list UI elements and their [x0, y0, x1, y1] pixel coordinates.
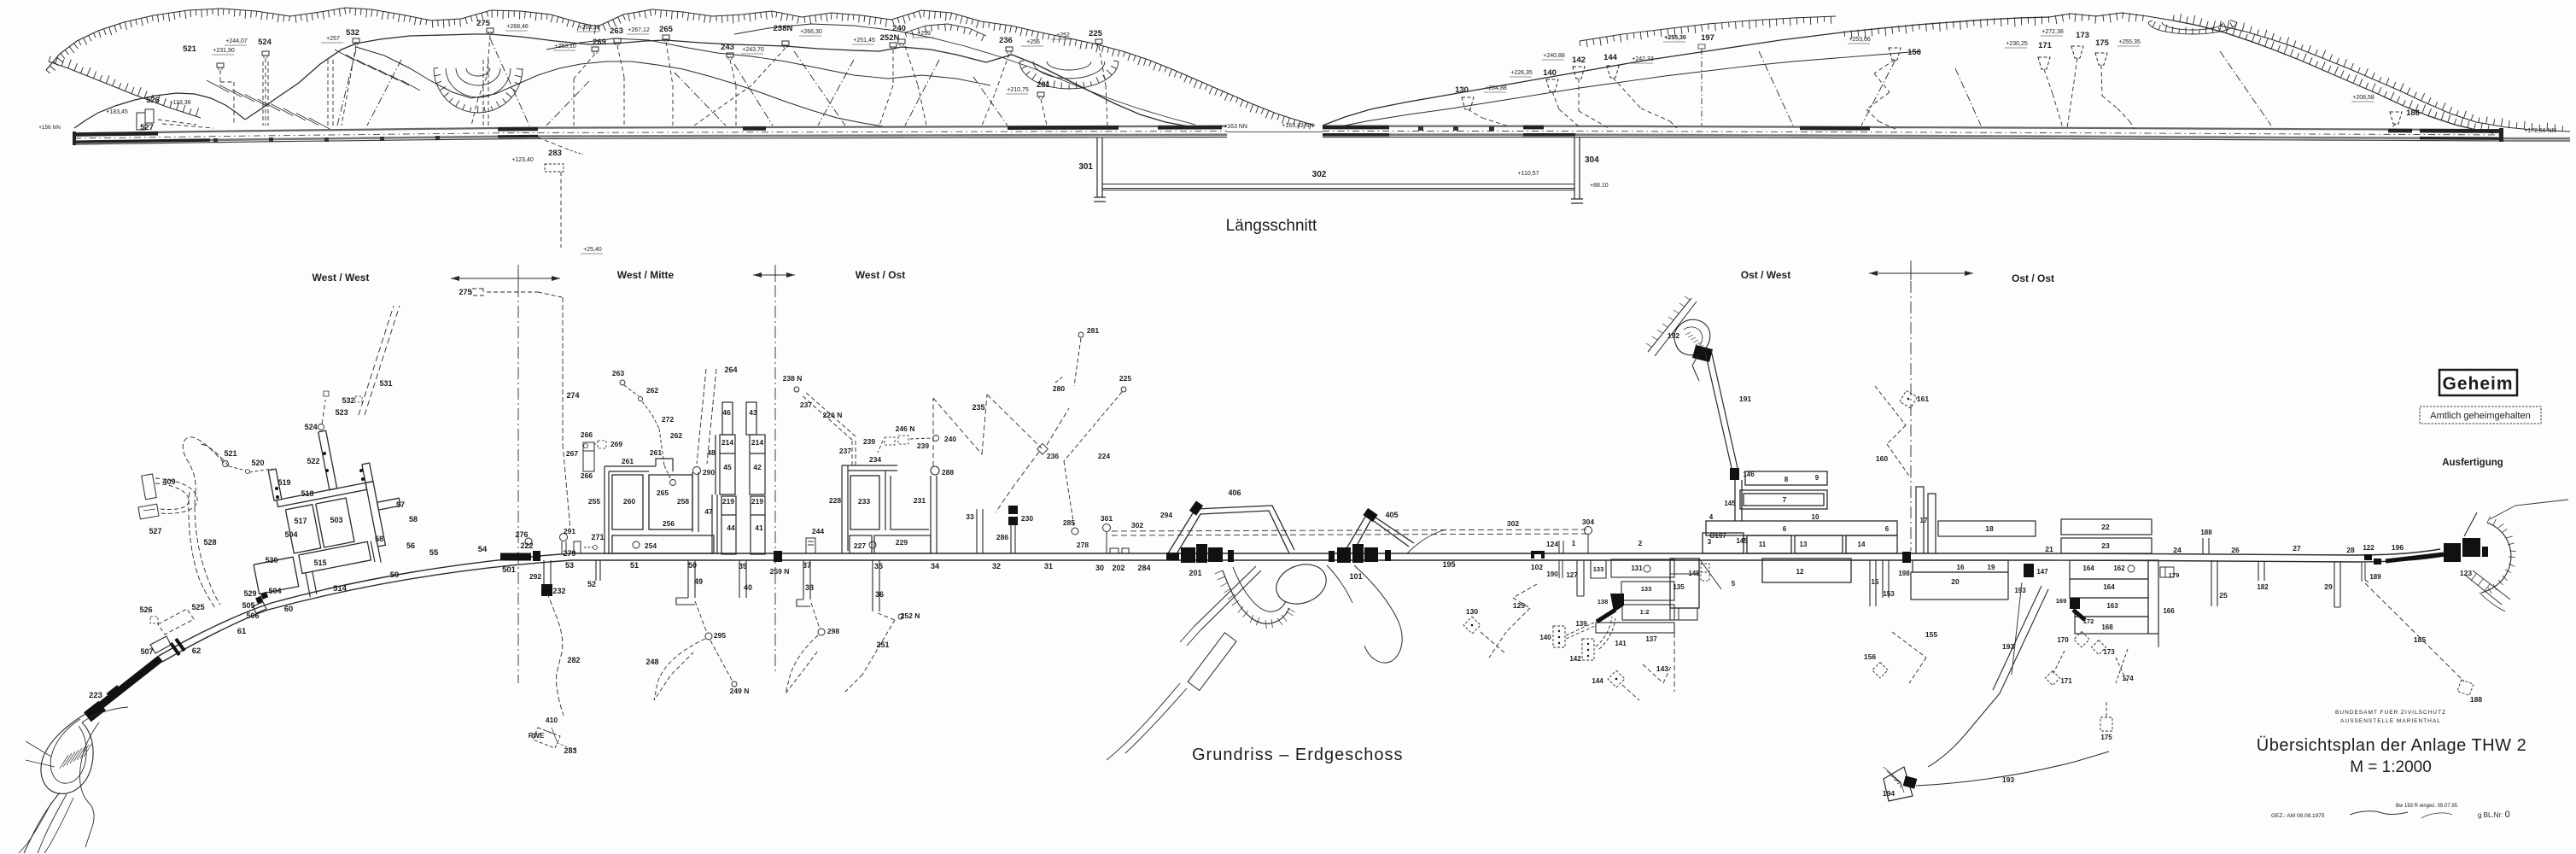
- svg-text:179: 179: [2169, 571, 2180, 579]
- svg-text:+257: +257: [326, 36, 340, 42]
- svg-text:252 N: 252 N: [901, 611, 920, 620]
- svg-text:129: 129: [1513, 601, 1525, 610]
- svg-text:255: 255: [588, 497, 600, 506]
- svg-text:38: 38: [805, 583, 814, 592]
- svg-text:162: 162: [2113, 564, 2125, 572]
- svg-text:259 N: 259 N: [770, 567, 790, 576]
- svg-text:189: 189: [2369, 573, 2381, 581]
- svg-text:254: 254: [645, 541, 657, 550]
- svg-text:291: 291: [564, 527, 575, 535]
- svg-text:18: 18: [1985, 524, 1994, 533]
- svg-text:BUNDESAMT FUER ZIVILSCHUTZ: BUNDESAMT FUER ZIVILSCHUTZ: [2335, 710, 2446, 716]
- svg-text:20: 20: [1951, 577, 1960, 586]
- svg-text:54: 54: [478, 545, 488, 554]
- svg-text:243: 243: [721, 43, 734, 52]
- svg-text:264: 264: [724, 366, 737, 374]
- svg-text:238 N: 238 N: [783, 374, 803, 383]
- svg-text:294: 294: [1160, 511, 1172, 519]
- svg-text:239: 239: [917, 442, 929, 450]
- svg-text:246 N: 246 N: [896, 424, 915, 433]
- svg-text:62: 62: [192, 646, 202, 656]
- svg-text:239: 239: [863, 437, 875, 446]
- svg-text:135: 135: [1673, 583, 1685, 591]
- svg-text:524: 524: [305, 423, 318, 431]
- svg-text:58: 58: [375, 535, 383, 543]
- svg-text:13: 13: [1800, 541, 1808, 548]
- svg-text:518: 518: [301, 489, 313, 498]
- svg-text:284: 284: [1137, 564, 1150, 572]
- svg-text:224: 224: [1098, 452, 1110, 460]
- svg-text:266: 266: [581, 430, 593, 439]
- svg-text:233: 233: [858, 497, 870, 506]
- svg-text:503: 503: [330, 516, 342, 524]
- svg-text:141: 141: [1615, 640, 1627, 647]
- svg-text:+266,30: +266,30: [800, 29, 822, 35]
- svg-text:17: 17: [1920, 517, 1928, 524]
- svg-text:298: 298: [827, 627, 839, 635]
- svg-text:281: 281: [1037, 80, 1051, 90]
- svg-text:169: 169: [2056, 597, 2067, 605]
- svg-text:282: 282: [567, 656, 580, 664]
- svg-text:283: 283: [548, 149, 562, 158]
- svg-text:504: 504: [284, 530, 297, 539]
- svg-text:292: 292: [529, 572, 541, 581]
- svg-text:140: 140: [1539, 634, 1551, 641]
- svg-text:191: 191: [1739, 395, 1751, 403]
- svg-text:248: 248: [645, 658, 658, 666]
- svg-text:262: 262: [670, 431, 682, 440]
- svg-text:+243,70: +243,70: [742, 47, 764, 53]
- svg-text:+123,40: +123,40: [511, 157, 534, 163]
- svg-text:202: 202: [1112, 564, 1124, 572]
- svg-text:30: 30: [1095, 564, 1104, 572]
- svg-text:142: 142: [1569, 655, 1581, 663]
- svg-text:+110,57: +110,57: [1518, 171, 1539, 177]
- svg-text:228: 228: [829, 496, 841, 505]
- svg-text:521: 521: [183, 44, 197, 54]
- svg-text:196: 196: [2392, 543, 2404, 552]
- svg-text:186: 186: [2406, 108, 2420, 118]
- svg-text:+242,33: +242,33: [1632, 56, 1654, 62]
- svg-text:15: 15: [1872, 578, 1879, 586]
- svg-text:+267,12: +267,12: [628, 27, 650, 33]
- svg-text:182: 182: [2257, 583, 2269, 591]
- svg-text:275: 275: [476, 19, 491, 28]
- svg-text:256: 256: [663, 519, 675, 528]
- svg-text:266: 266: [581, 471, 593, 480]
- svg-text:227: 227: [854, 541, 866, 550]
- svg-text:145: 145: [1736, 537, 1748, 545]
- svg-text:+156 NN: +156 NN: [38, 125, 61, 131]
- svg-text:+25,40: +25,40: [583, 247, 602, 253]
- svg-text:274: 274: [566, 391, 579, 400]
- svg-text:AUSSENSTELLE MARIENTHAL: AUSSENSTELLE MARIENTHAL: [2340, 718, 2441, 724]
- svg-text:506: 506: [246, 611, 259, 620]
- svg-text:West / Mitte: West / Mitte: [617, 269, 675, 281]
- svg-text:41: 41: [755, 524, 763, 532]
- svg-text:+240,88: +240,88: [1543, 53, 1565, 59]
- svg-text:267: 267: [566, 449, 578, 458]
- svg-text:501: 501: [502, 565, 517, 575]
- svg-text:231: 231: [914, 496, 926, 505]
- svg-text:33: 33: [966, 512, 974, 521]
- svg-text:+163 NN: +163 NN: [1224, 124, 1247, 130]
- svg-text:137: 137: [1645, 635, 1657, 643]
- svg-text:261: 261: [622, 457, 634, 465]
- svg-text:170: 170: [2057, 636, 2069, 644]
- svg-text:+88.10: +88.10: [1590, 183, 1609, 189]
- svg-text:+272,38: +272,38: [2042, 29, 2064, 35]
- svg-text:192: 192: [1668, 331, 1679, 340]
- svg-text:190: 190: [1546, 570, 1558, 578]
- svg-text:147: 147: [2036, 568, 2048, 576]
- svg-text:249 N: 249 N: [730, 687, 750, 695]
- svg-text:145: 145: [1724, 500, 1736, 507]
- svg-text:9: 9: [1815, 474, 1820, 482]
- svg-text:195: 195: [1442, 560, 1455, 569]
- svg-text:188: 188: [2200, 529, 2212, 536]
- svg-text:520: 520: [251, 459, 264, 467]
- svg-text:+231,90: +231,90: [213, 48, 235, 54]
- svg-text:156: 156: [1907, 48, 1921, 57]
- svg-text:521: 521: [224, 449, 237, 458]
- svg-text:525: 525: [191, 603, 204, 611]
- svg-text:155: 155: [1925, 630, 1937, 639]
- svg-text:14: 14: [1858, 541, 1866, 548]
- svg-text:GEZ.: AM 08.08.1975: GEZ.: AM 08.08.1975: [2271, 813, 2325, 819]
- svg-text:23: 23: [2101, 541, 2110, 550]
- svg-text:+255,30: +255,30: [1664, 35, 1686, 41]
- svg-text:g BL.Nr: 0: g BL.Nr: 0: [2478, 810, 2510, 820]
- svg-text:232: 232: [552, 587, 565, 595]
- svg-text:7: 7: [1783, 496, 1787, 504]
- svg-text:263: 263: [610, 26, 623, 36]
- svg-text:166: 166: [2163, 607, 2175, 615]
- svg-text:43: 43: [749, 408, 757, 417]
- svg-text:230: 230: [1021, 514, 1033, 523]
- svg-text:258: 258: [677, 497, 689, 506]
- svg-text:302: 302: [1507, 519, 1519, 528]
- svg-text:172: 172: [2083, 617, 2094, 625]
- svg-text:60: 60: [284, 605, 294, 614]
- svg-text:12: 12: [1796, 568, 1804, 576]
- svg-text:263: 263: [612, 369, 624, 377]
- svg-text:214: 214: [751, 438, 763, 447]
- svg-text:51: 51: [630, 561, 639, 570]
- svg-text:514: 514: [333, 584, 348, 594]
- svg-text:19: 19: [1988, 564, 1995, 571]
- svg-text:244: 244: [812, 527, 824, 535]
- svg-text:124: 124: [1546, 540, 1558, 548]
- svg-text:193: 193: [2002, 775, 2014, 784]
- svg-text:144: 144: [1603, 53, 1618, 62]
- svg-text:28: 28: [2346, 546, 2355, 554]
- svg-text:49: 49: [694, 577, 703, 586]
- svg-text:175: 175: [2100, 734, 2112, 741]
- svg-text:164: 164: [2082, 564, 2094, 572]
- svg-text:201: 201: [1189, 569, 1201, 577]
- svg-text:138: 138: [1598, 598, 1609, 605]
- svg-text:56: 56: [406, 541, 415, 550]
- svg-text:532: 532: [346, 28, 359, 38]
- svg-text:139: 139: [1575, 620, 1587, 628]
- svg-text:46: 46: [722, 408, 731, 417]
- svg-text:301: 301: [1078, 162, 1093, 172]
- svg-text:173: 173: [2103, 648, 2115, 656]
- svg-text:234: 234: [869, 455, 881, 464]
- svg-text:61: 61: [237, 627, 247, 636]
- svg-text:59: 59: [390, 570, 400, 580]
- svg-text:Übersichtsplan der Anlage THW: Übersichtsplan der Anlage THW 2: [2257, 736, 2526, 755]
- svg-text:236: 236: [999, 36, 1013, 45]
- svg-text:269: 269: [610, 440, 622, 448]
- svg-text:304: 304: [1582, 518, 1594, 526]
- svg-text:278: 278: [1077, 541, 1089, 549]
- svg-text:127: 127: [1566, 571, 1578, 579]
- svg-text:156: 156: [1864, 652, 1876, 661]
- svg-text:265: 265: [659, 25, 674, 34]
- svg-text:+210,75: +210,75: [1007, 87, 1029, 93]
- svg-text:519: 519: [277, 478, 290, 487]
- svg-text:Geheim: Geheim: [2442, 374, 2513, 394]
- svg-text:290: 290: [703, 468, 715, 477]
- svg-text:225: 225: [1089, 29, 1103, 38]
- svg-text:52: 52: [587, 580, 596, 588]
- svg-text:530: 530: [265, 556, 277, 564]
- svg-text:219: 219: [751, 497, 763, 506]
- svg-text:4: 4: [1709, 513, 1714, 521]
- svg-text:101: 101: [1349, 572, 1362, 581]
- svg-text:219: 219: [722, 497, 734, 506]
- svg-text:Θ197: Θ197: [1709, 532, 1726, 540]
- svg-text:505: 505: [242, 601, 254, 610]
- svg-text:22: 22: [2101, 523, 2110, 531]
- svg-text:+163,43 NN: +163,43 NN: [1282, 123, 1314, 129]
- svg-text:524: 524: [258, 38, 272, 47]
- svg-text:133: 133: [1593, 565, 1604, 573]
- svg-text:261: 261: [650, 448, 662, 457]
- svg-text:+113,36: +113,36: [170, 100, 191, 106]
- svg-text:507: 507: [140, 647, 153, 656]
- svg-text:223: 223: [89, 691, 102, 700]
- svg-text:Ost / Ost: Ost / Ost: [2012, 272, 2054, 284]
- svg-text:6: 6: [1783, 525, 1787, 533]
- svg-text:526: 526: [139, 605, 152, 614]
- svg-text:302: 302: [1131, 521, 1143, 529]
- svg-text:171: 171: [2060, 677, 2072, 685]
- svg-text:188: 188: [2470, 695, 2482, 704]
- svg-text:27: 27: [2293, 544, 2301, 553]
- svg-text:+226,35: +226,35: [1510, 70, 1533, 76]
- svg-text:531: 531: [379, 379, 392, 388]
- svg-text:32: 32: [992, 562, 1001, 570]
- svg-text:47: 47: [704, 507, 713, 516]
- svg-text:302: 302: [1312, 170, 1327, 179]
- svg-text:140: 140: [1543, 68, 1557, 78]
- svg-text:35: 35: [874, 562, 883, 570]
- svg-text:194: 194: [1883, 789, 1895, 798]
- svg-text:1:2: 1:2: [1640, 608, 1650, 616]
- svg-text:251: 251: [876, 640, 889, 649]
- svg-text:Ost / West: Ost / West: [1741, 269, 1790, 281]
- svg-text:532: 532: [342, 396, 354, 405]
- svg-text:Bw 193 R eingez. 05.07.95: Bw 193 R eingez. 05.07.95: [2396, 804, 2458, 809]
- svg-text:25: 25: [2219, 591, 2228, 600]
- svg-text:6: 6: [1885, 525, 1890, 533]
- svg-text:+208,58: +208,58: [2352, 95, 2374, 101]
- svg-text:+253,10: +253,10: [554, 44, 576, 50]
- svg-text:286: 286: [996, 533, 1008, 541]
- svg-text:31: 31: [1044, 562, 1053, 570]
- svg-text:214: 214: [721, 438, 733, 447]
- svg-text:229: 229: [896, 538, 908, 547]
- svg-text:260: 260: [623, 497, 635, 506]
- svg-text:Grundriss – Erdgeschoss: Grundriss – Erdgeschoss: [1192, 746, 1404, 764]
- svg-text:252N: 252N: [880, 33, 900, 43]
- svg-text:102: 102: [1531, 563, 1543, 571]
- svg-text:16: 16: [1957, 564, 1965, 571]
- svg-text:153: 153: [1883, 590, 1895, 598]
- svg-text:410: 410: [546, 716, 558, 724]
- svg-text:197: 197: [1701, 33, 1714, 43]
- svg-text:122: 122: [2363, 544, 2374, 552]
- svg-text:143: 143: [1656, 664, 1668, 673]
- svg-text:+204,88: +204,88: [1485, 85, 1507, 91]
- svg-text:517: 517: [294, 517, 307, 525]
- svg-text:235: 235: [972, 403, 984, 412]
- svg-text:21: 21: [2045, 545, 2053, 553]
- svg-text:+255,35: +255,35: [2118, 39, 2141, 45]
- svg-text:5: 5: [1732, 580, 1736, 588]
- svg-text:2: 2: [1638, 539, 1643, 547]
- svg-text:262: 262: [646, 386, 658, 395]
- svg-text:237: 237: [839, 447, 851, 455]
- svg-text:10: 10: [1812, 513, 1820, 521]
- svg-text:11: 11: [1759, 541, 1767, 548]
- svg-text:288: 288: [942, 468, 954, 477]
- svg-text:269: 269: [593, 38, 606, 47]
- svg-text:144: 144: [1592, 677, 1603, 685]
- svg-text:271: 271: [591, 533, 604, 541]
- svg-text:26: 26: [2231, 546, 2240, 554]
- svg-text:142: 142: [1572, 56, 1586, 65]
- svg-text:42: 42: [753, 463, 762, 471]
- svg-text:West / Ost: West / Ost: [856, 269, 905, 281]
- svg-text:265: 265: [657, 488, 669, 497]
- svg-text:406: 406: [1228, 488, 1241, 497]
- svg-text:236: 236: [1047, 452, 1059, 460]
- svg-text:29: 29: [2324, 582, 2333, 591]
- svg-text:275: 275: [459, 288, 471, 296]
- svg-text:515: 515: [313, 559, 326, 567]
- svg-text:M = 1:2000: M = 1:2000: [2350, 758, 2432, 776]
- svg-text:West / West: West / West: [313, 272, 370, 284]
- svg-text:276: 276: [515, 530, 528, 539]
- svg-text:+256: +256: [1026, 39, 1040, 45]
- svg-text:225: 225: [1119, 374, 1131, 383]
- svg-text:1: 1: [1572, 539, 1576, 547]
- svg-text:24: 24: [2173, 546, 2182, 554]
- svg-text:+259: +259: [917, 31, 931, 37]
- svg-text:526: 526: [146, 96, 160, 105]
- svg-text:193: 193: [2002, 642, 2014, 651]
- svg-text:161: 161: [1917, 395, 1929, 403]
- svg-text:+230,25: +230,25: [2006, 41, 2028, 47]
- svg-text:160: 160: [1876, 454, 1888, 463]
- svg-text:198: 198: [1898, 570, 1910, 577]
- svg-text:237: 237: [800, 401, 812, 409]
- svg-text:130: 130: [1455, 85, 1469, 95]
- svg-text:226 N: 226 N: [823, 411, 843, 419]
- svg-text:+183,45: +183,45: [106, 109, 128, 115]
- svg-text:58: 58: [409, 515, 418, 524]
- svg-text:+255,23: +255,23: [578, 25, 600, 31]
- svg-text:+244,07: +244,07: [225, 38, 248, 44]
- svg-text:173: 173: [2076, 31, 2089, 40]
- svg-text:301: 301: [1101, 514, 1113, 523]
- svg-text:504: 504: [268, 587, 281, 595]
- svg-text:RWE: RWE: [529, 732, 545, 740]
- svg-text:405: 405: [1385, 511, 1398, 519]
- svg-text:131: 131: [1631, 564, 1643, 572]
- svg-text:+268,46: +268,46: [506, 24, 529, 30]
- svg-text:Amtlich geheimgehalten: Amtlich geheimgehalten: [2430, 411, 2530, 421]
- svg-text:240: 240: [944, 435, 956, 443]
- svg-text:522: 522: [307, 457, 319, 465]
- svg-text:57: 57: [396, 500, 405, 509]
- svg-text:527: 527: [140, 123, 154, 132]
- svg-text:174: 174: [2122, 675, 2134, 682]
- svg-text:+252: +252: [1056, 32, 1070, 38]
- svg-text:238N: 238N: [774, 24, 793, 33]
- svg-text:133: 133: [1641, 585, 1652, 593]
- svg-text:409: 409: [162, 477, 175, 486]
- svg-text:175: 175: [2095, 38, 2110, 48]
- svg-text:Ausfertigung: Ausfertigung: [2442, 458, 2503, 468]
- svg-text:44: 44: [727, 524, 735, 532]
- svg-text:281: 281: [1087, 326, 1099, 335]
- svg-text:34: 34: [931, 562, 939, 570]
- svg-text:295: 295: [714, 631, 726, 640]
- svg-text:523: 523: [336, 408, 348, 417]
- svg-text:53: 53: [565, 561, 574, 570]
- svg-text:163: 163: [2106, 602, 2118, 610]
- svg-text:55: 55: [429, 548, 439, 558]
- svg-text:240: 240: [892, 24, 906, 33]
- svg-text:+251,45: +251,45: [853, 38, 875, 44]
- svg-text:130: 130: [1466, 607, 1478, 616]
- svg-text:+172,66 NN: +172,66 NN: [2524, 128, 2556, 134]
- svg-text:45: 45: [723, 463, 732, 471]
- svg-text:304: 304: [1585, 155, 1599, 165]
- svg-text:528: 528: [203, 538, 216, 547]
- svg-text:171: 171: [2038, 41, 2053, 50]
- svg-text:8: 8: [1785, 476, 1789, 483]
- svg-text:527: 527: [149, 527, 161, 535]
- svg-text:280: 280: [1053, 384, 1065, 393]
- svg-text:168: 168: [2101, 623, 2113, 631]
- svg-text:185: 185: [2414, 635, 2426, 644]
- svg-text:529: 529: [243, 589, 256, 598]
- svg-text:164: 164: [2103, 583, 2115, 591]
- svg-text:40: 40: [744, 583, 752, 592]
- svg-text:+253,66: +253,66: [1849, 37, 1871, 43]
- svg-text:272: 272: [662, 415, 674, 424]
- svg-text:Längsschnitt: Längsschnitt: [1226, 217, 1317, 235]
